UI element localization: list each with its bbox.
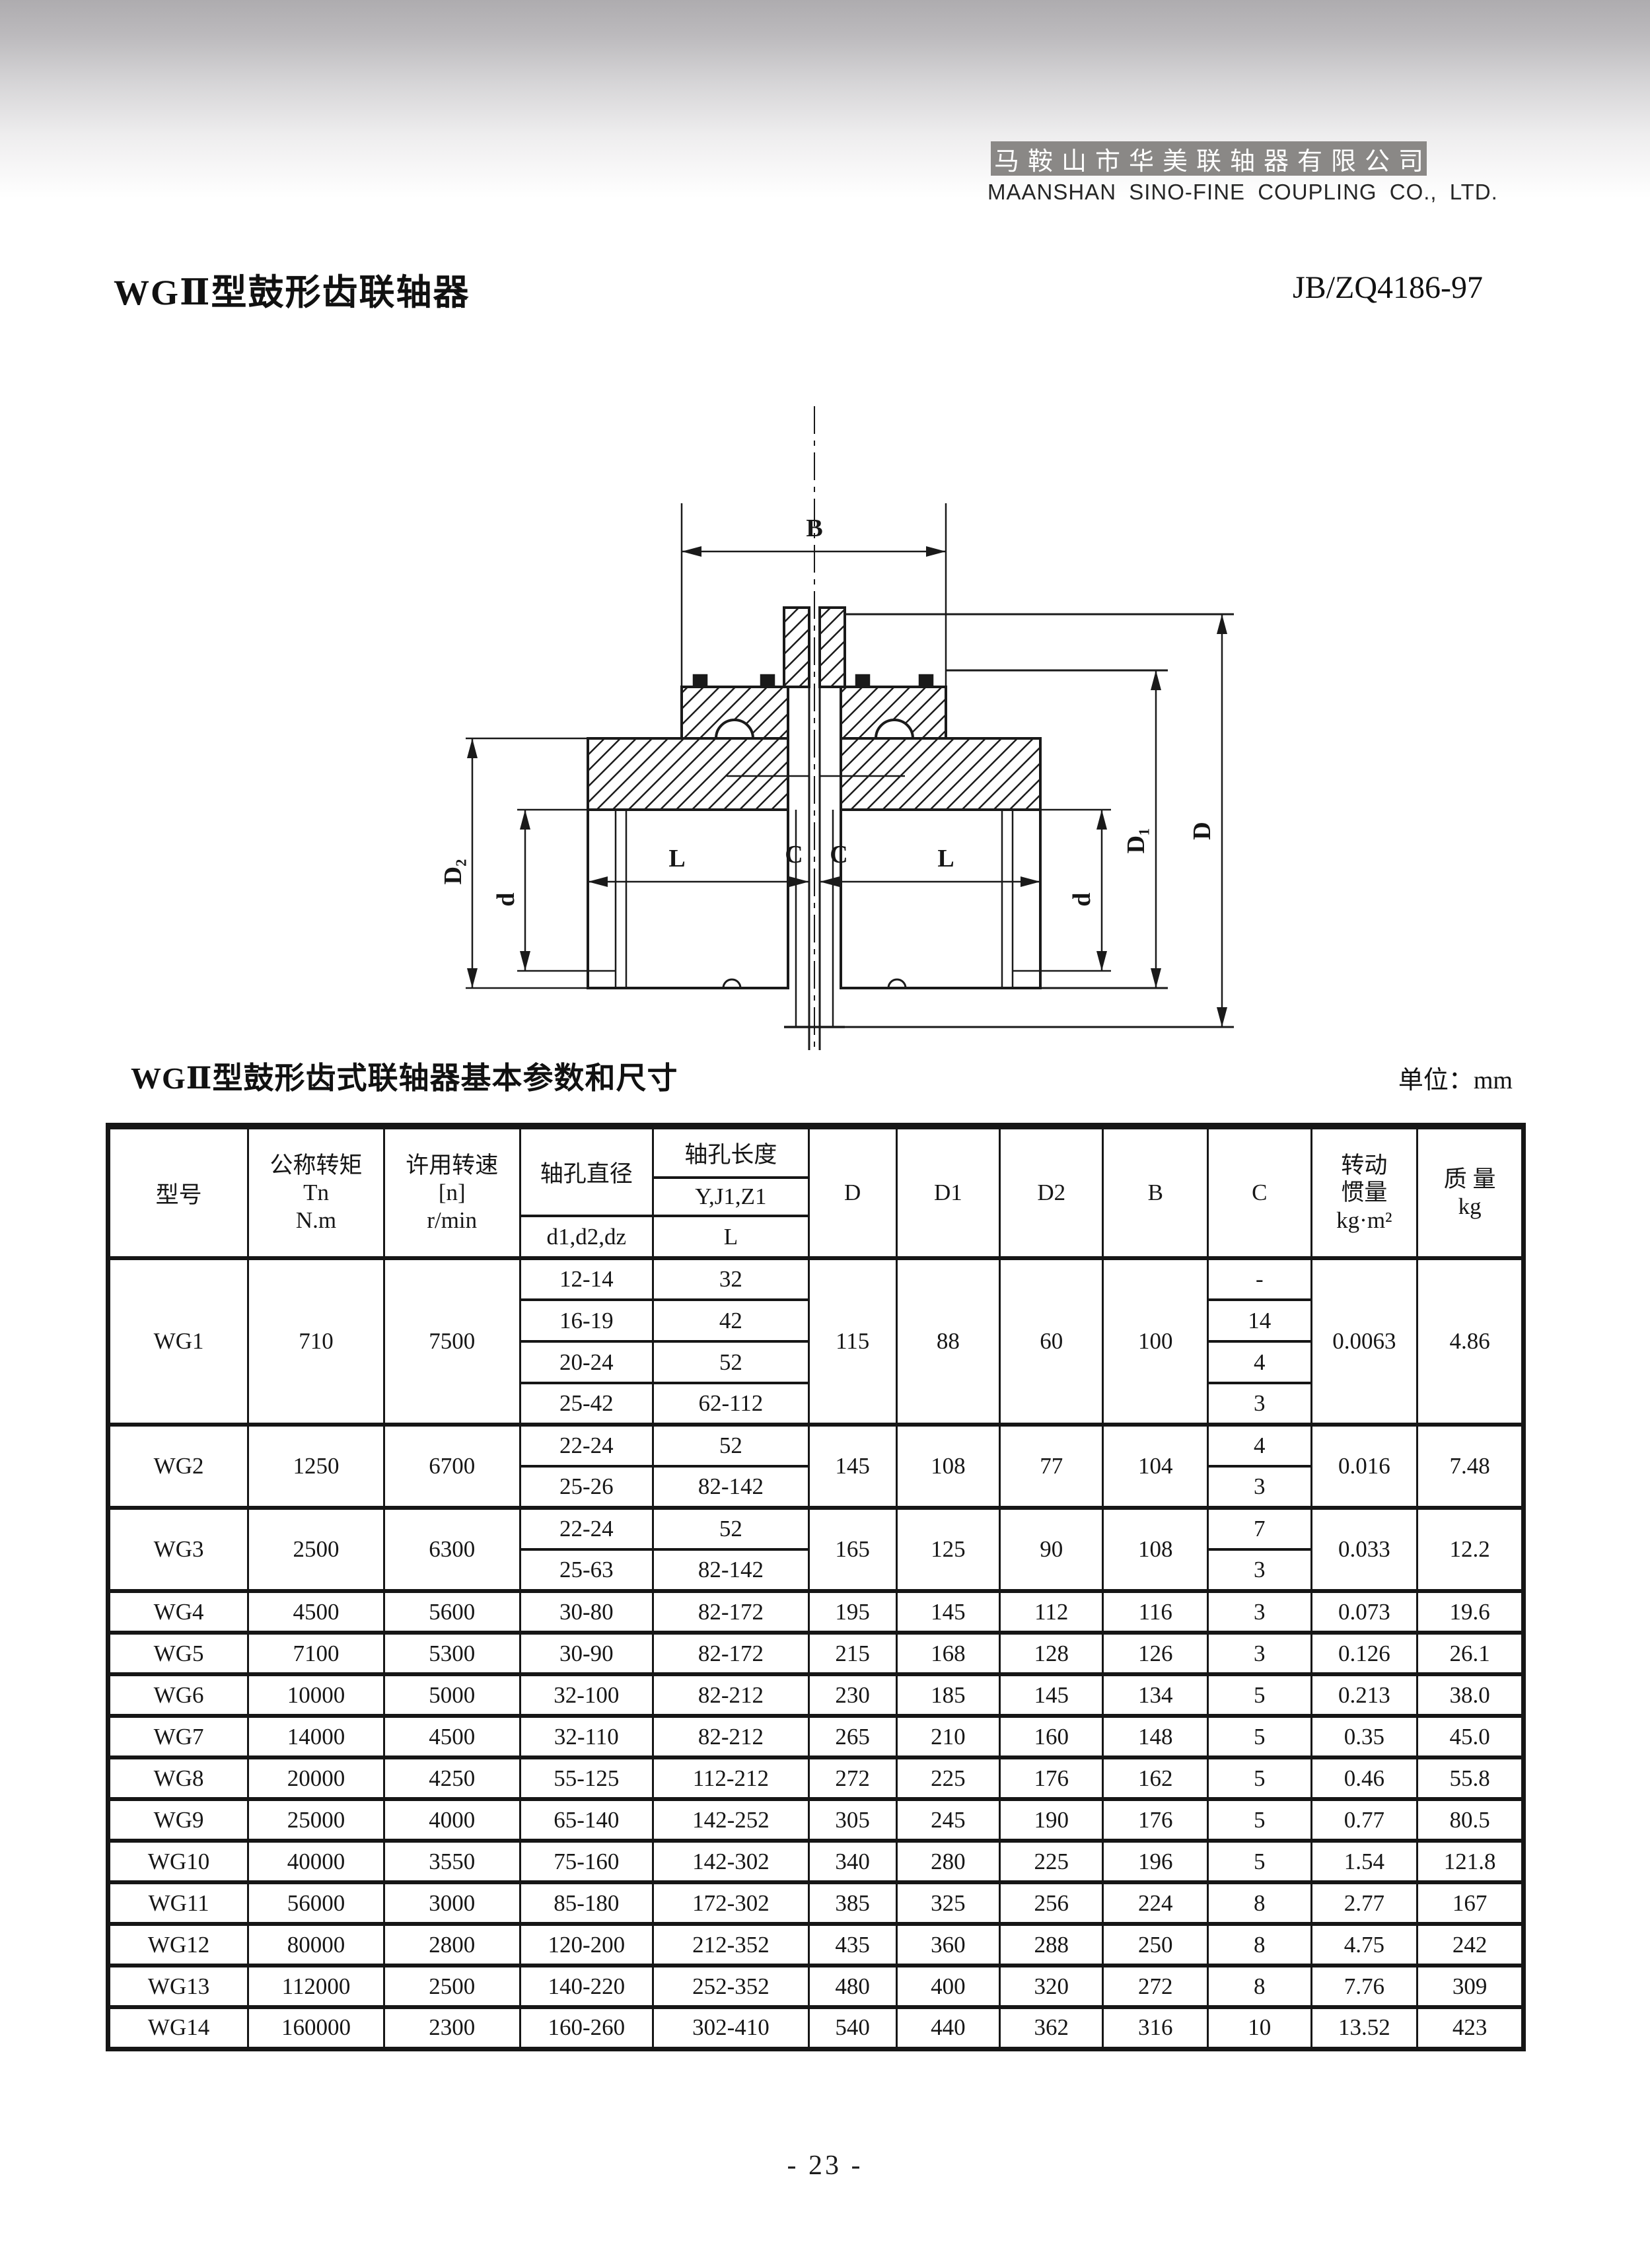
cell-model: WG5 <box>108 1633 248 1674</box>
cell-model: WG8 <box>108 1757 248 1799</box>
cell-C: 8 <box>1208 1882 1311 1924</box>
cell-B: 162 <box>1103 1757 1208 1799</box>
cell-D: 480 <box>808 1966 896 2007</box>
page-title: WGⅡ型鼓形齿联轴器 <box>114 263 470 315</box>
cell-bore: 32-110 <box>520 1716 653 1757</box>
speed-label: 许用转速 <box>388 1152 517 1179</box>
cell-D2: 256 <box>1000 1882 1103 1924</box>
cell-mass: 242 <box>1417 1924 1524 1966</box>
cell-bore: 30-80 <box>520 1591 653 1633</box>
table-row: WG141600002300160-260302-410540440362316… <box>108 2007 1524 2049</box>
cell-bore: 25-26 <box>520 1466 653 1508</box>
cell-length: 62-112 <box>653 1383 809 1425</box>
table-title: WGⅡ型鼓形齿式联轴器基本参数和尺寸 <box>131 1054 678 1098</box>
cell-B: 148 <box>1103 1716 1208 1757</box>
cell-D1: 225 <box>896 1757 999 1799</box>
company-band: 马鞍山市华美联轴器有限公司 <box>991 141 1427 176</box>
cell-B: 272 <box>1103 1966 1208 2007</box>
technical-drawing: B L C C L D₂ d d D₁ D <box>396 390 1275 1057</box>
cell-C: 3 <box>1208 1383 1311 1425</box>
cell-C: 8 <box>1208 1924 1311 1966</box>
col-header-D1: D1 <box>896 1126 999 1258</box>
spec-table-container: 型号 公称转矩 Tn N.m 许用转速 [n] r/min 轴孔直径 轴孔长度 … <box>106 1123 1526 2051</box>
cell-model: WG2 <box>108 1425 248 1508</box>
cell-C: 3 <box>1208 1591 1311 1633</box>
dim-label-C-left: C <box>785 841 803 868</box>
cell-D2: 176 <box>1000 1757 1103 1799</box>
cell-D: 540 <box>808 2007 896 2049</box>
cell-speed: 3550 <box>384 1841 520 1882</box>
cell-D1: 185 <box>896 1674 999 1716</box>
cell-inertia: 0.46 <box>1311 1757 1417 1799</box>
cell-D1: 168 <box>896 1633 999 1674</box>
dim-label-D1: D₁ <box>1122 828 1150 854</box>
cell-mass: 121.8 <box>1417 1841 1524 1882</box>
cell-torque: 10000 <box>248 1674 384 1716</box>
col-header-torque: 公称转矩 Tn N.m <box>248 1126 384 1258</box>
spec-table-header: 型号 公称转矩 Tn N.m 许用转速 [n] r/min 轴孔直径 轴孔长度 … <box>108 1126 1524 1258</box>
cell-inertia: 0.033 <box>1311 1508 1417 1591</box>
cell-speed: 7500 <box>384 1258 520 1425</box>
cell-speed: 4250 <box>384 1757 520 1799</box>
cell-D: 265 <box>808 1716 896 1757</box>
cell-torque: 56000 <box>248 1882 384 1924</box>
cell-model: WG1 <box>108 1258 248 1425</box>
cell-mass: 45.0 <box>1417 1716 1524 1757</box>
col-header-mass: 质 量 kg <box>1417 1126 1524 1258</box>
torque-label: 公称转矩 <box>252 1152 380 1179</box>
cell-inertia: 13.52 <box>1311 2007 1417 2049</box>
cell-D1: 210 <box>896 1716 999 1757</box>
dim-label-C-right: C <box>830 841 847 868</box>
cell-bore: 120-200 <box>520 1924 653 1966</box>
cell-bore: 55-125 <box>520 1757 653 1799</box>
cell-mass: 55.8 <box>1417 1757 1524 1799</box>
catalog-page: 马鞍山市华美联轴器有限公司 MAANSHAN SINO-FINE COUPLIN… <box>0 0 1650 2268</box>
col-header-bore: 轴孔直径 <box>520 1126 653 1216</box>
cell-D2: 145 <box>1000 1674 1103 1716</box>
cell-torque: 1250 <box>248 1425 384 1508</box>
cell-mass: 19.6 <box>1417 1591 1524 1633</box>
cell-bore: 75-160 <box>520 1841 653 1882</box>
cell-D1: 245 <box>896 1799 999 1841</box>
cell-D1: 88 <box>896 1258 999 1425</box>
cell-torque: 710 <box>248 1258 384 1425</box>
cell-C: 3 <box>1208 1633 1311 1674</box>
cell-bore: 85-180 <box>520 1882 653 1924</box>
dim-label-d-left: d <box>492 892 520 906</box>
cell-B: 116 <box>1103 1591 1208 1633</box>
cell-C: 5 <box>1208 1757 1311 1799</box>
cell-bore: 22-24 <box>520 1425 653 1466</box>
cell-model: WG6 <box>108 1674 248 1716</box>
table-row: WG1156000300085-180172-30238532525622482… <box>108 1882 1524 1924</box>
table-row: WG820000425055-125112-21227222517616250.… <box>108 1757 1524 1799</box>
cell-B: 108 <box>1103 1508 1208 1591</box>
table-row: WG714000450032-11082-21226521016014850.3… <box>108 1716 1524 1757</box>
table-row: WG57100530030-9082-17221516812812630.126… <box>108 1633 1524 1674</box>
dim-label-L-left: L <box>668 845 685 872</box>
cell-bore: 12-14 <box>520 1258 653 1300</box>
cell-B: 126 <box>1103 1633 1208 1674</box>
cell-B: 176 <box>1103 1799 1208 1841</box>
cell-length: 212-352 <box>653 1924 809 1966</box>
col-header-D: D <box>808 1126 896 1258</box>
cell-C: 5 <box>1208 1841 1311 1882</box>
cell-torque: 7100 <box>248 1633 384 1674</box>
cell-C: 5 <box>1208 1799 1311 1841</box>
cell-B: 100 <box>1103 1258 1208 1425</box>
cell-D: 385 <box>808 1882 896 1924</box>
cell-D2: 77 <box>1000 1425 1103 1508</box>
cell-inertia: 0.77 <box>1311 1799 1417 1841</box>
cell-B: 250 <box>1103 1924 1208 1966</box>
table-row: WG131120002500140-220252-352480400320272… <box>108 1966 1524 2007</box>
cell-B: 196 <box>1103 1841 1208 1882</box>
cell-B: 316 <box>1103 2007 1208 2049</box>
cell-D1: 400 <box>896 1966 999 2007</box>
cell-speed: 5600 <box>384 1591 520 1633</box>
cell-C: 4 <box>1208 1425 1311 1466</box>
cell-D2: 288 <box>1000 1924 1103 1966</box>
table-row: WG44500560030-8082-17219514511211630.073… <box>108 1591 1524 1633</box>
cell-inertia: 0.073 <box>1311 1591 1417 1633</box>
col-header-length-types: Y,J1,Z1 <box>653 1178 809 1216</box>
table-row: WG12800002800120-200212-3524353602882508… <box>108 1924 1524 1966</box>
inertia-unit: kg·m² <box>1315 1207 1414 1234</box>
cell-C: 8 <box>1208 1966 1311 2007</box>
cell-length: 82-172 <box>653 1591 809 1633</box>
cell-bore: 25-63 <box>520 1549 653 1591</box>
cell-D: 145 <box>808 1425 896 1508</box>
cell-speed: 5000 <box>384 1674 520 1716</box>
cell-D2: 160 <box>1000 1716 1103 1757</box>
cell-speed: 4500 <box>384 1716 520 1757</box>
speed-symbol: [n] <box>388 1179 517 1206</box>
cell-length: 52 <box>653 1425 809 1466</box>
mass-label: 质 量 <box>1421 1166 1519 1193</box>
cell-D: 230 <box>808 1674 896 1716</box>
cell-D: 305 <box>808 1799 896 1841</box>
cell-mass: 167 <box>1417 1882 1524 1924</box>
dim-label-d-right: d <box>1068 892 1096 906</box>
cell-D2: 90 <box>1000 1508 1103 1591</box>
table-row: WG1710750012-14321158860100-0.00634.86 <box>108 1258 1524 1300</box>
company-name-en: MAANSHAN SINO-FINE COUPLING CO., LTD. <box>987 180 1430 205</box>
dim-label-L-right: L <box>937 845 954 872</box>
cell-bore: 65-140 <box>520 1799 653 1841</box>
header-row-1: 型号 公称转矩 Tn N.m 许用转速 [n] r/min 轴孔直径 轴孔长度 … <box>108 1126 1524 1178</box>
cell-length: 142-252 <box>653 1799 809 1841</box>
cell-D: 165 <box>808 1508 896 1591</box>
cell-torque: 14000 <box>248 1716 384 1757</box>
table-row: WG925000400065-140142-25230524519017650.… <box>108 1799 1524 1841</box>
col-header-B: B <box>1103 1126 1208 1258</box>
cell-inertia: 0.0063 <box>1311 1258 1417 1425</box>
cell-length: 82-142 <box>653 1549 809 1591</box>
cell-B: 224 <box>1103 1882 1208 1924</box>
cell-bore: 22-24 <box>520 1508 653 1549</box>
cell-model: WG4 <box>108 1591 248 1633</box>
speed-unit: r/min <box>388 1207 517 1234</box>
cell-speed: 2300 <box>384 2007 520 2049</box>
cell-model: WG11 <box>108 1882 248 1924</box>
cell-C: 5 <box>1208 1674 1311 1716</box>
cell-C: 7 <box>1208 1508 1311 1549</box>
cell-D1: 125 <box>896 1508 999 1591</box>
cell-torque: 112000 <box>248 1966 384 2007</box>
col-header-inertia: 转动 惯量 kg·m² <box>1311 1126 1417 1258</box>
cell-speed: 3000 <box>384 1882 520 1924</box>
inertia-label-1: 转动 <box>1315 1152 1414 1179</box>
cell-torque: 25000 <box>248 1799 384 1841</box>
cell-D2: 60 <box>1000 1258 1103 1425</box>
col-header-bore-symbols: d1,d2,dz <box>520 1216 653 1258</box>
cell-model: WG3 <box>108 1508 248 1591</box>
cell-inertia: 1.54 <box>1311 1841 1417 1882</box>
col-header-length-symbol: L <box>653 1216 809 1258</box>
cell-D: 115 <box>808 1258 896 1425</box>
cell-inertia: 7.76 <box>1311 1966 1417 2007</box>
cell-C: - <box>1208 1258 1311 1300</box>
cell-inertia: 4.75 <box>1311 1924 1417 1966</box>
cell-length: 52 <box>653 1508 809 1549</box>
cell-bore: 25-42 <box>520 1383 653 1425</box>
cell-bore: 30-90 <box>520 1633 653 1674</box>
cell-mass: 12.2 <box>1417 1508 1524 1591</box>
cell-D: 195 <box>808 1591 896 1633</box>
cell-D: 272 <box>808 1757 896 1799</box>
cell-D1: 325 <box>896 1882 999 1924</box>
cell-length: 302-410 <box>653 2007 809 2049</box>
cell-D2: 112 <box>1000 1591 1103 1633</box>
cell-D: 340 <box>808 1841 896 1882</box>
cell-length: 42 <box>653 1300 809 1341</box>
cell-mass: 26.1 <box>1417 1633 1524 1674</box>
cell-length: 142-302 <box>653 1841 809 1882</box>
table-unit: 单位：mm <box>1398 1059 1513 1096</box>
cell-D2: 225 <box>1000 1841 1103 1882</box>
cell-mass: 80.5 <box>1417 1799 1524 1841</box>
cell-bore: 16-19 <box>520 1300 653 1341</box>
table-row: WG21250670022-24521451087710440.0167.48 <box>108 1425 1524 1466</box>
cell-length: 112-212 <box>653 1757 809 1799</box>
spec-table: 型号 公称转矩 Tn N.m 许用转速 [n] r/min 轴孔直径 轴孔长度 … <box>106 1123 1526 2051</box>
dim-label-D: D <box>1188 822 1216 839</box>
cell-model: WG9 <box>108 1799 248 1841</box>
cell-D1: 360 <box>896 1924 999 1966</box>
cell-mass: 309 <box>1417 1966 1524 2007</box>
cell-length: 82-172 <box>653 1633 809 1674</box>
cell-D1: 145 <box>896 1591 999 1633</box>
cell-length: 82-212 <box>653 1674 809 1716</box>
dim-label-D2: D₂ <box>439 859 467 885</box>
cell-torque: 2500 <box>248 1508 384 1591</box>
cell-D1: 280 <box>896 1841 999 1882</box>
cell-bore: 160-260 <box>520 2007 653 2049</box>
cell-length: 172-302 <box>653 1882 809 1924</box>
cell-D2: 362 <box>1000 2007 1103 2049</box>
cell-inertia: 0.213 <box>1311 1674 1417 1716</box>
cell-bore: 140-220 <box>520 1966 653 2007</box>
cell-inertia: 2.77 <box>1311 1882 1417 1924</box>
cell-length: 52 <box>653 1341 809 1383</box>
cell-torque: 80000 <box>248 1924 384 1966</box>
cell-D: 435 <box>808 1924 896 1966</box>
col-header-model: 型号 <box>108 1126 248 1258</box>
cell-D2: 190 <box>1000 1799 1103 1841</box>
page-number: - 23 - <box>0 2150 1650 2181</box>
cell-D: 215 <box>808 1633 896 1674</box>
cell-inertia: 0.016 <box>1311 1425 1417 1508</box>
dim-label-B: B <box>806 514 822 542</box>
table-row: WG1040000355075-160142-30234028022519651… <box>108 1841 1524 1882</box>
col-header-speed: 许用转速 [n] r/min <box>384 1126 520 1258</box>
cell-B: 134 <box>1103 1674 1208 1716</box>
cell-model: WG7 <box>108 1716 248 1757</box>
inertia-label-2: 惯量 <box>1315 1179 1414 1206</box>
cell-C: 3 <box>1208 1466 1311 1508</box>
table-row: WG32500630022-24521651259010870.03312.2 <box>108 1508 1524 1549</box>
cell-model: WG12 <box>108 1924 248 1966</box>
cell-D2: 320 <box>1000 1966 1103 2007</box>
cell-speed: 2500 <box>384 1966 520 2007</box>
cell-speed: 2800 <box>384 1924 520 1966</box>
table-row: WG610000500032-10082-21223018514513450.2… <box>108 1674 1524 1716</box>
cell-length: 82-212 <box>653 1716 809 1757</box>
cell-torque: 4500 <box>248 1591 384 1633</box>
cell-B: 104 <box>1103 1425 1208 1508</box>
cell-mass: 38.0 <box>1417 1674 1524 1716</box>
cell-length: 82-142 <box>653 1466 809 1508</box>
cell-C: 4 <box>1208 1341 1311 1383</box>
cell-model: WG10 <box>108 1841 248 1882</box>
cell-C: 14 <box>1208 1300 1311 1341</box>
cell-model: WG13 <box>108 1966 248 2007</box>
cell-mass: 423 <box>1417 2007 1524 2049</box>
cell-D2: 128 <box>1000 1633 1103 1674</box>
cell-C: 3 <box>1208 1549 1311 1591</box>
col-header-D2: D2 <box>1000 1126 1103 1258</box>
cell-inertia: 0.35 <box>1311 1716 1417 1757</box>
cell-D1: 108 <box>896 1425 999 1508</box>
cell-D1: 440 <box>896 2007 999 2049</box>
cell-mass: 4.86 <box>1417 1258 1524 1425</box>
cell-mass: 7.48 <box>1417 1425 1524 1508</box>
standard-number: JB/ZQ4186-97 <box>1293 269 1483 306</box>
cell-model: WG14 <box>108 2007 248 2049</box>
spec-table-body: WG1710750012-14321158860100-0.00634.8616… <box>108 1258 1524 2049</box>
torque-symbol: Tn <box>252 1179 380 1206</box>
cell-speed: 5300 <box>384 1633 520 1674</box>
cell-inertia: 0.126 <box>1311 1633 1417 1674</box>
col-header-C: C <box>1208 1126 1311 1258</box>
cell-torque: 40000 <box>248 1841 384 1882</box>
torque-unit: N.m <box>252 1207 380 1234</box>
mass-unit: kg <box>1421 1193 1519 1220</box>
cell-speed: 4000 <box>384 1799 520 1841</box>
cell-bore: 32-100 <box>520 1674 653 1716</box>
cell-length: 32 <box>653 1258 809 1300</box>
cell-bore: 20-24 <box>520 1341 653 1383</box>
company-name-cn: 马鞍山市华美联轴器有限公司 <box>994 141 1432 177</box>
cell-speed: 6700 <box>384 1425 520 1508</box>
col-header-length: 轴孔长度 <box>653 1126 809 1178</box>
cell-torque: 20000 <box>248 1757 384 1799</box>
cell-C: 10 <box>1208 2007 1311 2049</box>
cell-length: 252-352 <box>653 1966 809 2007</box>
cell-torque: 160000 <box>248 2007 384 2049</box>
cell-speed: 6300 <box>384 1508 520 1591</box>
cell-C: 5 <box>1208 1716 1311 1757</box>
